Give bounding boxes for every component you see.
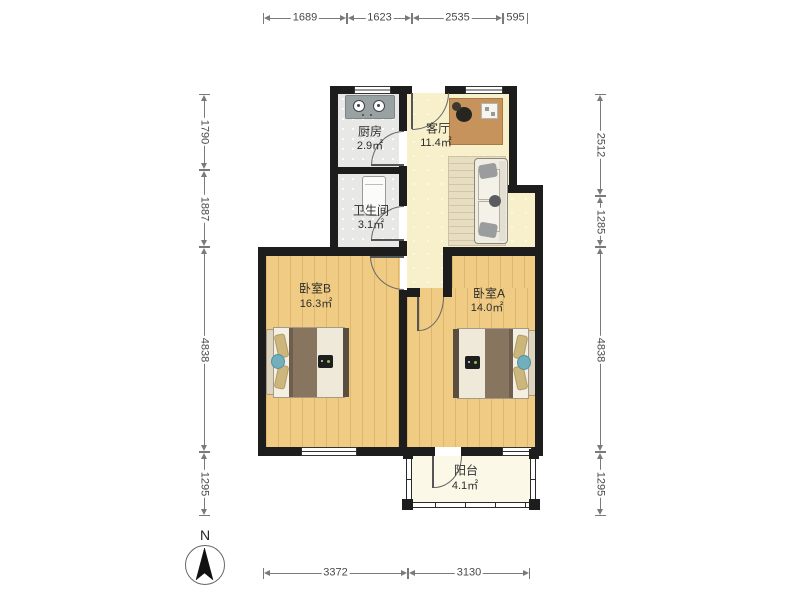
dim-label: 3130 (455, 567, 483, 580)
balcony-window-right (530, 457, 536, 503)
hat (271, 354, 285, 369)
wall (509, 86, 517, 193)
tablet (465, 356, 480, 369)
balcony-post (529, 449, 539, 459)
compass-n-label: N (200, 527, 210, 543)
dim-label: 595 (504, 12, 526, 25)
wall (399, 241, 407, 256)
balcony-post (403, 449, 413, 459)
balcony-window-left (406, 457, 412, 503)
stove (345, 95, 395, 119)
desk (449, 98, 503, 145)
wall (399, 86, 407, 131)
dim-top-1: 1689 (263, 10, 347, 26)
dim-label: 3372 (321, 567, 349, 580)
room-label-balcony: 阳台 (454, 462, 478, 479)
dim-label: 4838 (198, 335, 211, 363)
dim-top-4: 595 (503, 10, 528, 26)
wall (535, 185, 543, 456)
dim-label: 1623 (365, 12, 393, 25)
dim-label: 1790 (198, 118, 211, 146)
compass-circle (185, 545, 225, 585)
sofa-pillow (489, 195, 501, 207)
dim-label: 4838 (594, 335, 607, 363)
kitchen-window (354, 86, 391, 94)
dim-bottom-2: 3130 (408, 565, 530, 581)
tablet (318, 355, 333, 368)
kitchen-door-leaf (371, 164, 404, 166)
room-area-living: 11.4㎡ (420, 134, 452, 150)
dim-left-4: 1295 (196, 452, 212, 516)
wall (399, 290, 407, 456)
wall (461, 447, 503, 456)
wall (443, 247, 543, 256)
wall (399, 166, 407, 206)
wall (407, 288, 420, 297)
footboard (343, 328, 349, 397)
dim-top-3: 2535 (412, 10, 503, 26)
wall (258, 247, 266, 456)
sofa (474, 158, 508, 244)
bed-B (266, 327, 350, 398)
dim-right-4: 1295 (592, 452, 608, 516)
room-area-bedroomA: 14.0㎡ (471, 299, 503, 315)
dim-bottom-1: 3372 (263, 565, 408, 581)
dim-right-2: 1285 (592, 196, 608, 247)
room-area-balcony: 4.1㎡ (452, 477, 478, 493)
room-area-bedroomB: 16.3㎡ (300, 295, 332, 311)
bed-A (452, 328, 536, 399)
room-area-kitchen: 2.9㎡ (357, 137, 383, 153)
north-arrow-icon (186, 546, 223, 583)
bedroomB-window (301, 447, 357, 456)
bedroomB-door-leaf (370, 256, 404, 258)
dim-left-1: 1790 (196, 94, 212, 170)
hat (517, 355, 531, 370)
wall (333, 167, 403, 174)
blanket (485, 329, 513, 398)
desk-item (452, 102, 461, 111)
dim-left-2: 1887 (196, 170, 212, 247)
balcony-post (529, 499, 540, 510)
dim-label: 1295 (198, 470, 211, 498)
bathroom-door-leaf (371, 239, 404, 241)
dim-top-2: 1623 (347, 10, 412, 26)
blanket (289, 328, 317, 397)
dim-label: 1295 (594, 470, 607, 498)
living-window (465, 86, 503, 94)
floor-plan: 厨房 2.9㎡ 客厅 11.4㎡ 卫生间 3.1㎡ 卧室B 16.3㎡ 卧室A … (0, 0, 800, 600)
room-area-bathroom: 3.1㎡ (358, 216, 384, 232)
room-label-bedroomB: 卧室B (299, 280, 331, 297)
dim-right-3: 4838 (592, 247, 608, 452)
entry-door-leaf (411, 93, 413, 129)
balcony-door-leaf (432, 456, 434, 488)
dim-left-3: 4838 (196, 247, 212, 452)
desk-pad (481, 103, 498, 119)
balcony-window-bottom (406, 502, 536, 508)
compass: N (183, 527, 227, 591)
dim-label: 1689 (291, 12, 319, 25)
bedroomA-door-leaf (417, 297, 419, 331)
balcony-post (402, 499, 413, 510)
dim-label: 2512 (594, 131, 607, 159)
wall (330, 86, 338, 255)
bedroomA-window (502, 447, 532, 456)
sofa-pillow (478, 222, 498, 239)
dim-label: 2535 (443, 12, 471, 25)
dim-label: 1887 (198, 194, 211, 222)
dim-label: 1285 (594, 207, 607, 235)
dim-right-1: 2512 (592, 94, 608, 196)
wall (443, 247, 452, 297)
